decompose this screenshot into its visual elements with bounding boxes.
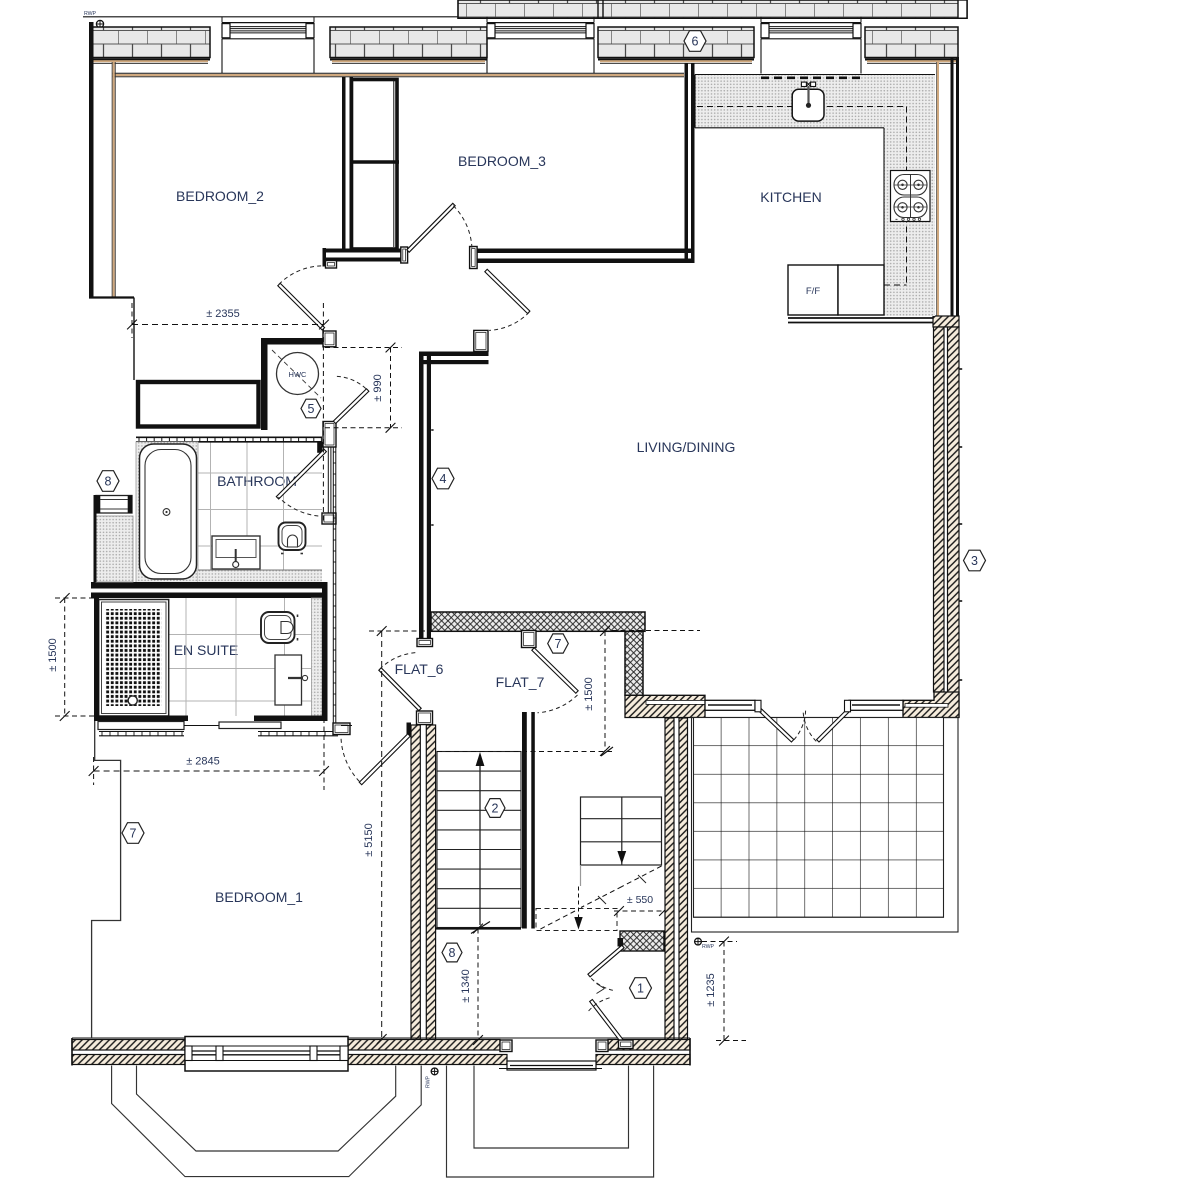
svg-text:BEDROOM_2: BEDROOM_2 <box>176 188 264 204</box>
svg-text:± 990: ± 990 <box>372 374 384 401</box>
svg-text:± 1500: ± 1500 <box>47 638 59 672</box>
svg-text:4: 4 <box>440 472 447 486</box>
svg-text:± 550: ± 550 <box>627 894 653 906</box>
svg-text:± 2355: ± 2355 <box>206 308 240 320</box>
svg-text:FLAT_7: FLAT_7 <box>496 674 545 690</box>
svg-text:2: 2 <box>492 801 499 815</box>
svg-text:BEDROOM_1: BEDROOM_1 <box>215 889 303 905</box>
svg-text:5: 5 <box>308 402 315 416</box>
svg-text:LIVING/DINING: LIVING/DINING <box>637 439 736 455</box>
svg-text:BEDROOM_3: BEDROOM_3 <box>458 153 546 169</box>
svg-text:6: 6 <box>692 34 699 48</box>
svg-text:± 2845: ± 2845 <box>186 756 220 768</box>
svg-text:RWP: RWP <box>426 1075 432 1088</box>
svg-text:± 1340: ± 1340 <box>460 969 472 1003</box>
svg-text:HWC: HWC <box>289 370 307 379</box>
svg-text:3: 3 <box>971 554 978 568</box>
svg-text:RWP: RWP <box>84 11 97 17</box>
svg-text:EN SUITE: EN SUITE <box>174 642 239 658</box>
svg-text:RWP: RWP <box>702 944 715 950</box>
svg-text:± 5150: ± 5150 <box>363 823 375 857</box>
svg-text:KITCHEN: KITCHEN <box>760 189 821 205</box>
svg-text:1: 1 <box>637 981 644 995</box>
svg-text:7: 7 <box>130 826 137 840</box>
svg-text:8: 8 <box>105 474 112 488</box>
svg-text:F/F: F/F <box>806 286 820 297</box>
svg-text:BATHROOM: BATHROOM <box>217 473 297 489</box>
svg-text:± 1500: ± 1500 <box>583 677 595 711</box>
svg-text:FLAT_6: FLAT_6 <box>395 661 444 677</box>
svg-text:7: 7 <box>555 637 562 651</box>
svg-text:± 1235: ± 1235 <box>705 973 717 1007</box>
svg-text:8: 8 <box>449 946 456 960</box>
